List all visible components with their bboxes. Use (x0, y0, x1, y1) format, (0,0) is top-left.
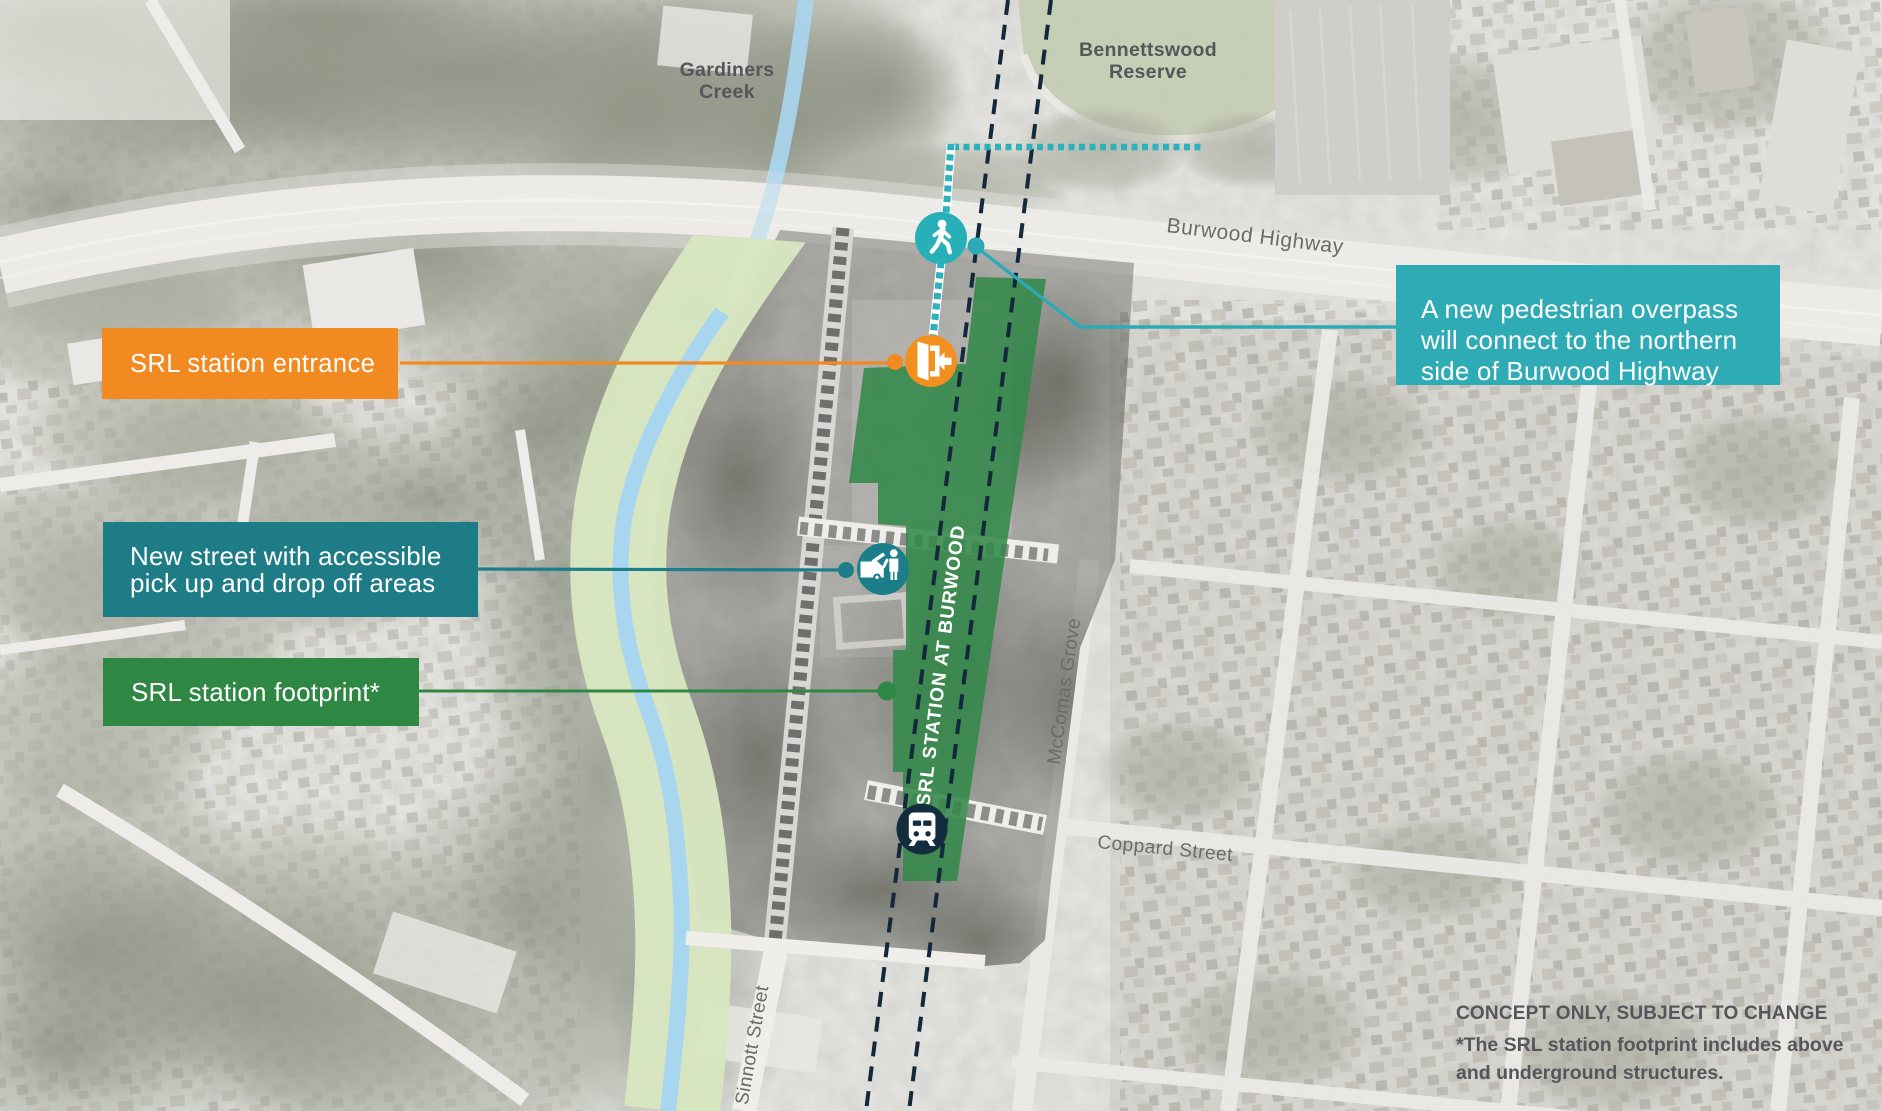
svg-text:Creek: Creek (699, 81, 755, 103)
svg-text:pick up and drop off areas: pick up and drop off areas (130, 568, 435, 598)
svg-text:SRL station footprint*: SRL station footprint* (131, 677, 380, 707)
svg-text:will connect to the northern: will connect to the northern (1420, 325, 1737, 355)
svg-text:side of Burwood Highway: side of Burwood Highway (1421, 356, 1719, 386)
svg-text:Reserve: Reserve (1109, 61, 1187, 83)
svg-text:*The SRL station footprint inc: *The SRL station footprint includes abov… (1456, 1034, 1844, 1056)
svg-text:Gardiners: Gardiners (680, 59, 775, 81)
svg-text:Bennettswood: Bennettswood (1079, 39, 1217, 61)
svg-text:A new pedestrian overpass: A new pedestrian overpass (1421, 294, 1738, 324)
svg-text:SRL station entrance: SRL station entrance (130, 350, 375, 378)
svg-text:CONCEPT ONLY, SUBJECT TO CHANG: CONCEPT ONLY, SUBJECT TO CHANGE (1456, 1003, 1827, 1024)
svg-text:New street with accessible: New street with accessible (130, 541, 442, 571)
svg-text:and underground structures.: and underground structures. (1456, 1062, 1724, 1084)
